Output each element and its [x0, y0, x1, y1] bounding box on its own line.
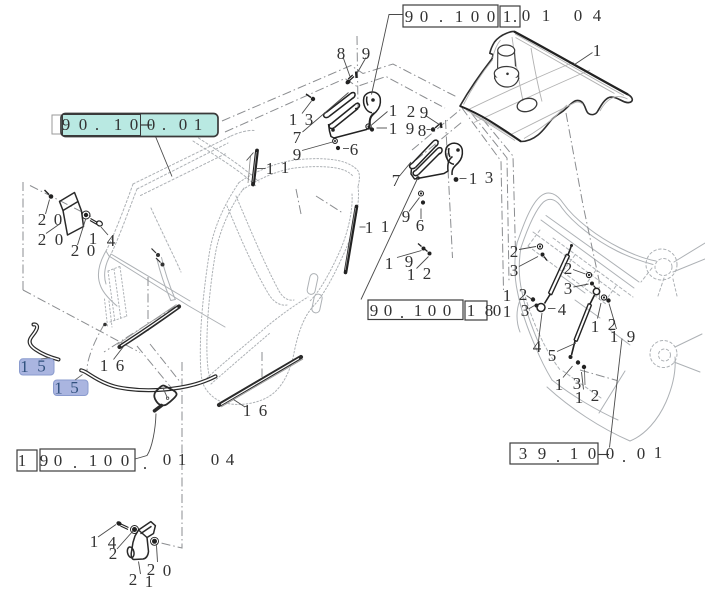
svg-text:1: 1 [467, 301, 476, 320]
svg-text:4: 4 [107, 231, 116, 250]
svg-text:1: 1 [18, 451, 27, 470]
svg-text:1: 1 [385, 254, 394, 273]
svg-text:3: 3 [519, 444, 528, 463]
svg-text:9: 9 [405, 7, 414, 26]
svg-text:1: 1 [575, 388, 584, 407]
svg-text:9: 9 [62, 115, 71, 134]
svg-text:1: 1 [266, 159, 275, 178]
svg-text:0: 0 [637, 444, 646, 463]
svg-text:4: 4 [593, 6, 602, 25]
svg-text:9: 9 [538, 444, 547, 463]
svg-text:3: 3 [521, 301, 530, 320]
svg-text:0: 0 [493, 301, 502, 320]
svg-text:.: . [556, 447, 560, 466]
svg-text:1: 1 [281, 158, 290, 177]
svg-text:1: 1 [455, 7, 464, 26]
svg-text:1: 1 [243, 401, 252, 420]
svg-text:1: 1 [89, 451, 98, 470]
svg-text:.: . [95, 115, 99, 134]
svg-text:9: 9 [402, 207, 411, 226]
svg-text:1: 1 [389, 119, 398, 138]
svg-text:0: 0 [211, 450, 220, 469]
svg-text:9: 9 [40, 451, 49, 470]
svg-text:0: 0 [55, 230, 64, 249]
svg-text:2: 2 [109, 544, 118, 563]
svg-text:1: 1 [194, 115, 203, 134]
svg-text:1: 1 [178, 450, 187, 469]
svg-text:1: 1 [89, 229, 98, 248]
svg-text:2: 2 [510, 242, 519, 261]
svg-text:2: 2 [38, 210, 47, 229]
svg-text:0: 0 [384, 301, 393, 320]
svg-text:.: . [513, 7, 517, 26]
svg-text:1: 1 [145, 572, 154, 591]
svg-text:9: 9 [293, 145, 302, 164]
svg-text:2: 2 [591, 386, 600, 405]
svg-text:0: 0 [104, 451, 113, 470]
svg-text:0: 0 [522, 6, 531, 25]
svg-text:0: 0 [471, 7, 480, 26]
svg-text:1: 1 [610, 327, 619, 346]
svg-text:0: 0 [163, 450, 172, 469]
svg-text:1: 1 [90, 532, 99, 551]
svg-text:3: 3 [510, 261, 519, 280]
svg-text:3: 3 [485, 168, 494, 187]
svg-text:6: 6 [259, 401, 268, 420]
svg-text:1: 1 [365, 218, 374, 237]
svg-text:4: 4 [558, 300, 567, 319]
svg-text:0: 0 [443, 301, 452, 320]
svg-text:2: 2 [38, 230, 47, 249]
svg-text:0: 0 [130, 115, 139, 134]
svg-text:0: 0 [420, 7, 429, 26]
svg-text:0: 0 [574, 6, 583, 25]
svg-text:1: 1 [654, 443, 663, 462]
svg-text:0: 0 [428, 301, 437, 320]
svg-text:7: 7 [392, 171, 401, 190]
svg-text:.: . [400, 303, 404, 322]
svg-text:1: 1 [593, 41, 602, 60]
svg-text:2: 2 [129, 570, 138, 589]
svg-text:6: 6 [116, 356, 125, 375]
svg-text:2: 2 [71, 241, 80, 260]
svg-text:1: 1 [289, 110, 298, 129]
svg-text:0: 0 [54, 451, 63, 470]
svg-text:1: 1 [503, 7, 512, 26]
svg-text:0: 0 [54, 210, 63, 229]
svg-text:0: 0 [179, 115, 188, 134]
svg-text:4: 4 [226, 450, 235, 469]
svg-text:0: 0 [121, 451, 130, 470]
svg-text:1: 1 [570, 444, 579, 463]
svg-text:1: 1 [54, 379, 63, 398]
svg-text:1: 1 [503, 302, 512, 321]
svg-text:1: 1 [389, 101, 398, 120]
svg-text:5: 5 [548, 346, 557, 365]
svg-text:1: 1 [469, 169, 478, 188]
svg-text:0: 0 [79, 115, 88, 134]
svg-text:9: 9 [406, 119, 415, 138]
svg-text:3: 3 [305, 110, 314, 129]
svg-text:8: 8 [418, 121, 427, 140]
svg-text:1: 1 [100, 356, 109, 375]
svg-text:1: 1 [555, 375, 564, 394]
svg-text:1: 1 [414, 301, 423, 320]
svg-text:1: 1 [114, 115, 123, 134]
svg-text:6: 6 [416, 216, 425, 235]
svg-text:9: 9 [627, 327, 636, 346]
svg-text:.: . [73, 453, 77, 472]
svg-text:1: 1 [381, 217, 390, 236]
svg-text:0: 0 [147, 115, 156, 134]
svg-text:9: 9 [420, 103, 429, 122]
svg-text:0: 0 [606, 444, 615, 463]
svg-text:1: 1 [591, 317, 600, 336]
svg-text:9: 9 [362, 44, 371, 63]
svg-text:0: 0 [163, 561, 172, 580]
svg-text:0: 0 [487, 7, 496, 26]
svg-text:.: . [439, 7, 443, 26]
svg-text:4: 4 [533, 337, 542, 356]
svg-text:8: 8 [337, 44, 346, 63]
svg-text:9: 9 [370, 301, 379, 320]
svg-text:3: 3 [564, 279, 573, 298]
svg-text:6: 6 [350, 140, 359, 159]
svg-text:.: . [162, 115, 166, 134]
svg-text:5: 5 [70, 378, 79, 397]
svg-text:0: 0 [588, 444, 597, 463]
svg-text:2: 2 [564, 259, 573, 278]
svg-text:1: 1 [542, 6, 551, 25]
svg-text:1: 1 [20, 357, 29, 376]
svg-text:.: . [622, 447, 626, 466]
svg-text:5: 5 [37, 357, 46, 376]
svg-text:2: 2 [423, 264, 432, 283]
svg-text:1: 1 [407, 265, 416, 284]
svg-text:.: . [143, 454, 147, 473]
